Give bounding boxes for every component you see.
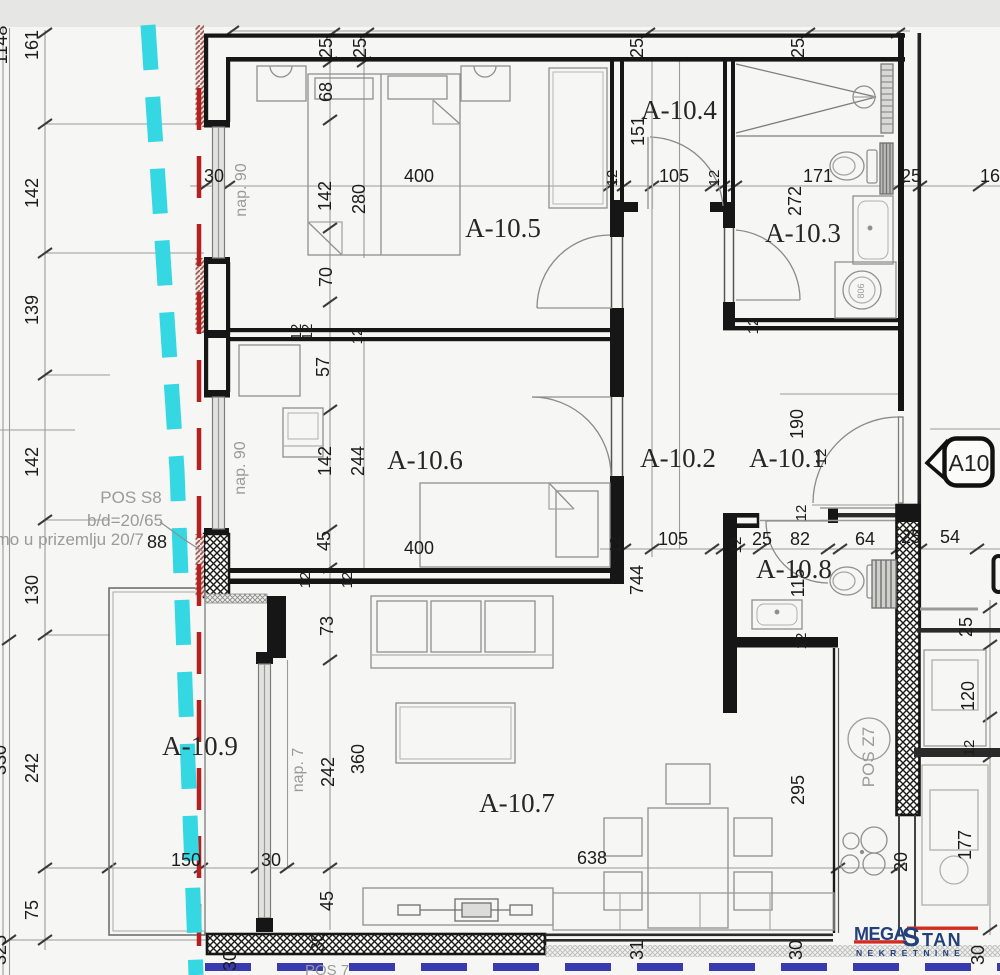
svg-text:171: 171 bbox=[803, 166, 833, 186]
svg-text:25: 25 bbox=[956, 617, 976, 637]
svg-text:A-10.8: A-10.8 bbox=[756, 554, 832, 584]
svg-text:A-10.7: A-10.7 bbox=[479, 788, 555, 818]
svg-text:73: 73 bbox=[317, 616, 337, 636]
svg-text:130: 130 bbox=[22, 575, 42, 605]
svg-text:142: 142 bbox=[22, 178, 42, 208]
svg-text:70: 70 bbox=[316, 267, 336, 287]
svg-text:b/d=20/65: b/d=20/65 bbox=[87, 511, 163, 530]
svg-text:244: 244 bbox=[348, 446, 368, 476]
svg-text:nap. 90: nap. 90 bbox=[233, 163, 250, 216]
svg-text:54: 54 bbox=[940, 527, 960, 547]
svg-text:161: 161 bbox=[22, 30, 42, 60]
svg-text:A-10.5: A-10.5 bbox=[465, 213, 541, 243]
svg-text:A-10.4: A-10.4 bbox=[641, 95, 717, 125]
svg-text:272: 272 bbox=[785, 186, 805, 216]
svg-text:25: 25 bbox=[901, 166, 921, 186]
svg-text:12: 12 bbox=[339, 572, 356, 589]
svg-text:12: 12 bbox=[706, 170, 723, 187]
svg-text:150: 150 bbox=[171, 850, 201, 870]
svg-text:30: 30 bbox=[220, 951, 240, 971]
svg-text:105: 105 bbox=[658, 529, 688, 549]
svg-text:806: 806 bbox=[856, 283, 866, 298]
svg-text:142: 142 bbox=[315, 446, 335, 476]
svg-text:82: 82 bbox=[790, 529, 810, 549]
svg-text:400: 400 bbox=[404, 538, 434, 558]
svg-text:638: 638 bbox=[577, 848, 607, 868]
svg-text:142: 142 bbox=[315, 181, 335, 211]
svg-text:280: 280 bbox=[349, 184, 369, 214]
svg-text:177: 177 bbox=[955, 830, 975, 860]
svg-text:75: 75 bbox=[22, 900, 42, 920]
svg-text:1148: 1148 bbox=[0, 26, 11, 65]
svg-text:25: 25 bbox=[350, 38, 370, 58]
svg-text:64: 64 bbox=[855, 529, 875, 549]
svg-text:139: 139 bbox=[22, 295, 42, 325]
svg-text:POS Z7: POS Z7 bbox=[859, 727, 878, 787]
svg-text:A10: A10 bbox=[949, 450, 990, 476]
svg-text:30: 30 bbox=[968, 945, 988, 965]
svg-text:12: 12 bbox=[349, 328, 366, 345]
svg-text:30: 30 bbox=[204, 166, 224, 186]
svg-text:142: 142 bbox=[22, 447, 42, 477]
svg-text:25: 25 bbox=[901, 527, 921, 547]
svg-text:68: 68 bbox=[316, 82, 336, 102]
svg-text:744: 744 bbox=[627, 565, 647, 595]
svg-text:POS 7: POS 7 bbox=[305, 962, 349, 975]
svg-text:12: 12 bbox=[793, 633, 810, 650]
svg-text:30: 30 bbox=[308, 932, 328, 952]
svg-text:NEKRETNINE: NEKRETNINE bbox=[856, 948, 965, 958]
svg-text:nap. 90: nap. 90 bbox=[232, 441, 249, 494]
svg-text:A-10.1: A-10.1 bbox=[749, 443, 825, 473]
svg-text:MEGA: MEGA bbox=[854, 924, 907, 944]
svg-text:161: 161 bbox=[980, 166, 1000, 186]
svg-text:12: 12 bbox=[299, 324, 316, 341]
svg-text:12: 12 bbox=[607, 537, 624, 554]
svg-text:360: 360 bbox=[348, 744, 368, 774]
svg-text:12: 12 bbox=[604, 170, 621, 187]
svg-text:A-10.9: A-10.9 bbox=[162, 731, 238, 761]
svg-text:88: 88 bbox=[147, 532, 167, 552]
svg-text:25: 25 bbox=[752, 529, 772, 549]
svg-text:400: 400 bbox=[404, 166, 434, 186]
svg-text:31: 31 bbox=[627, 940, 647, 960]
svg-text:105: 105 bbox=[659, 166, 689, 186]
svg-text:190: 190 bbox=[787, 409, 807, 439]
svg-text:POS S8: POS S8 bbox=[100, 488, 161, 507]
svg-text:325: 325 bbox=[0, 935, 10, 965]
svg-text:nap. 7: nap. 7 bbox=[290, 748, 307, 793]
svg-text:TAN: TAN bbox=[922, 930, 962, 950]
svg-text:amo u prizemlju 20/7: amo u prizemlju 20/7 bbox=[0, 530, 144, 549]
svg-text:12: 12 bbox=[961, 740, 978, 757]
svg-text:25: 25 bbox=[316, 38, 336, 58]
svg-text:25: 25 bbox=[627, 38, 647, 58]
svg-text:242: 242 bbox=[318, 757, 338, 787]
svg-text:295: 295 bbox=[788, 775, 808, 805]
svg-text:12: 12 bbox=[745, 318, 762, 335]
svg-text:12: 12 bbox=[793, 505, 810, 522]
svg-text:330: 330 bbox=[0, 745, 10, 775]
svg-text:12: 12 bbox=[297, 572, 314, 589]
svg-text:20: 20 bbox=[891, 852, 911, 872]
svg-text:12: 12 bbox=[728, 537, 745, 554]
svg-text:242: 242 bbox=[22, 753, 42, 783]
svg-text:30: 30 bbox=[786, 940, 806, 960]
svg-text:A-10.6: A-10.6 bbox=[387, 445, 463, 475]
svg-text:45: 45 bbox=[314, 531, 334, 551]
svg-text:A-10.2: A-10.2 bbox=[640, 443, 716, 473]
svg-text:A-10.3: A-10.3 bbox=[765, 218, 841, 248]
svg-text:120: 120 bbox=[958, 681, 978, 711]
svg-text:45: 45 bbox=[317, 891, 337, 911]
svg-text:25: 25 bbox=[788, 38, 808, 58]
svg-text:30: 30 bbox=[261, 850, 281, 870]
svg-text:57: 57 bbox=[313, 357, 333, 377]
